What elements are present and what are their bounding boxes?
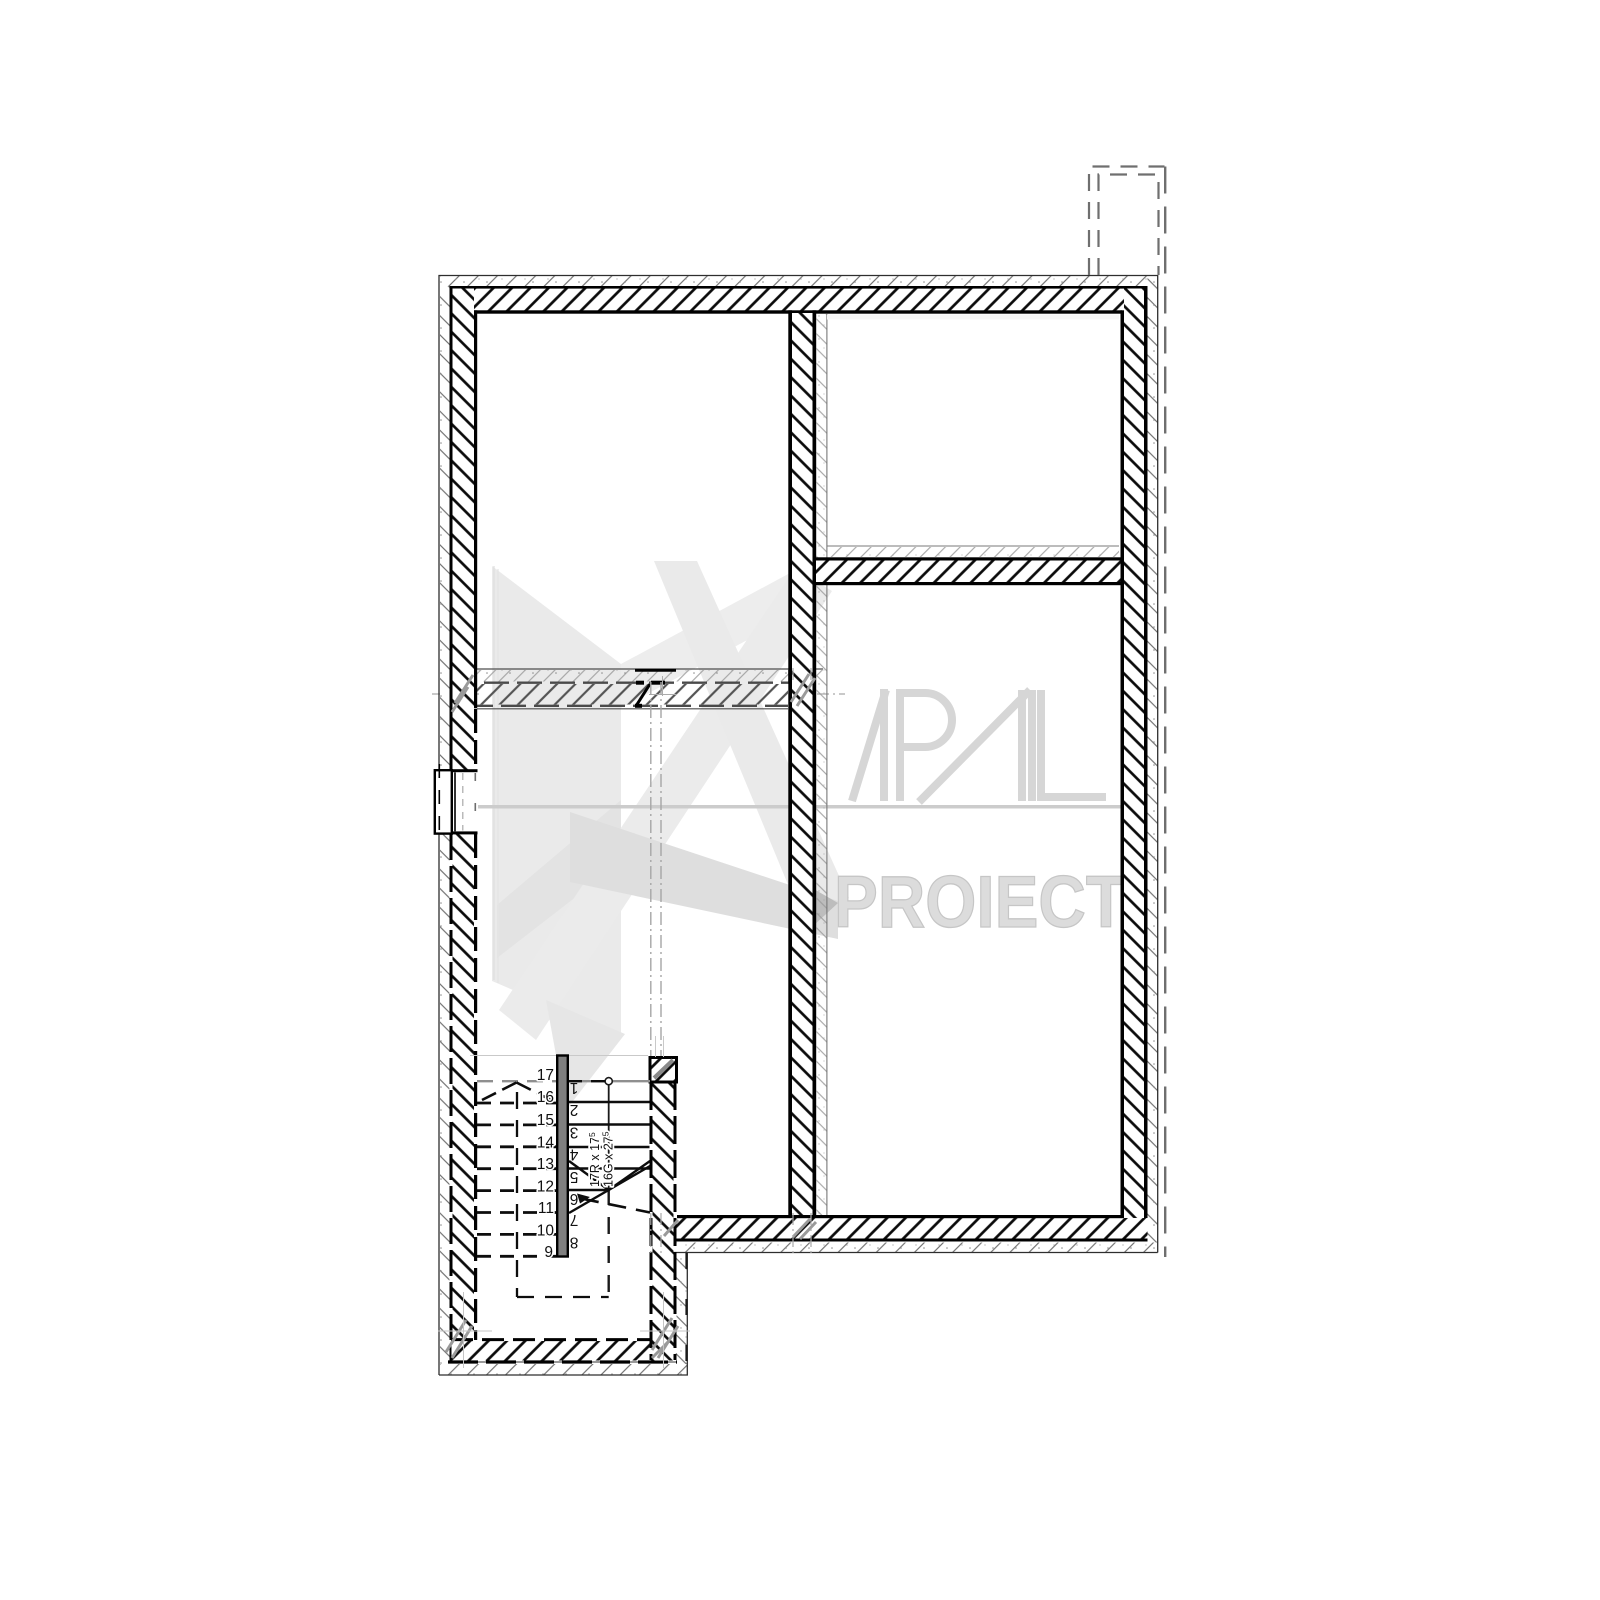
svg-text:6: 6	[570, 1190, 579, 1207]
svg-text:16G x 275: 16G x 275	[601, 1131, 616, 1187]
svg-text:12: 12	[537, 1179, 554, 1196]
svg-text:16: 16	[537, 1089, 554, 1106]
svg-text:5: 5	[570, 1168, 579, 1185]
svg-text:1: 1	[570, 1079, 579, 1096]
svg-text:13: 13	[537, 1156, 554, 1173]
svg-text:8: 8	[570, 1233, 579, 1250]
svg-text:10: 10	[537, 1223, 555, 1240]
svg-text:17R x 175: 17R x 175	[587, 1132, 602, 1187]
svg-text:2: 2	[570, 1101, 579, 1118]
svg-text:17: 17	[537, 1067, 554, 1084]
svg-text:15: 15	[537, 1112, 554, 1129]
svg-text:7: 7	[570, 1211, 579, 1228]
svg-text:11: 11	[538, 1200, 554, 1217]
svg-text:PROIECT: PROIECT	[834, 862, 1126, 943]
svg-text:14: 14	[537, 1135, 555, 1152]
svg-text:4: 4	[569, 1146, 578, 1163]
svg-text:9: 9	[544, 1244, 553, 1261]
svg-text:3: 3	[570, 1123, 579, 1140]
